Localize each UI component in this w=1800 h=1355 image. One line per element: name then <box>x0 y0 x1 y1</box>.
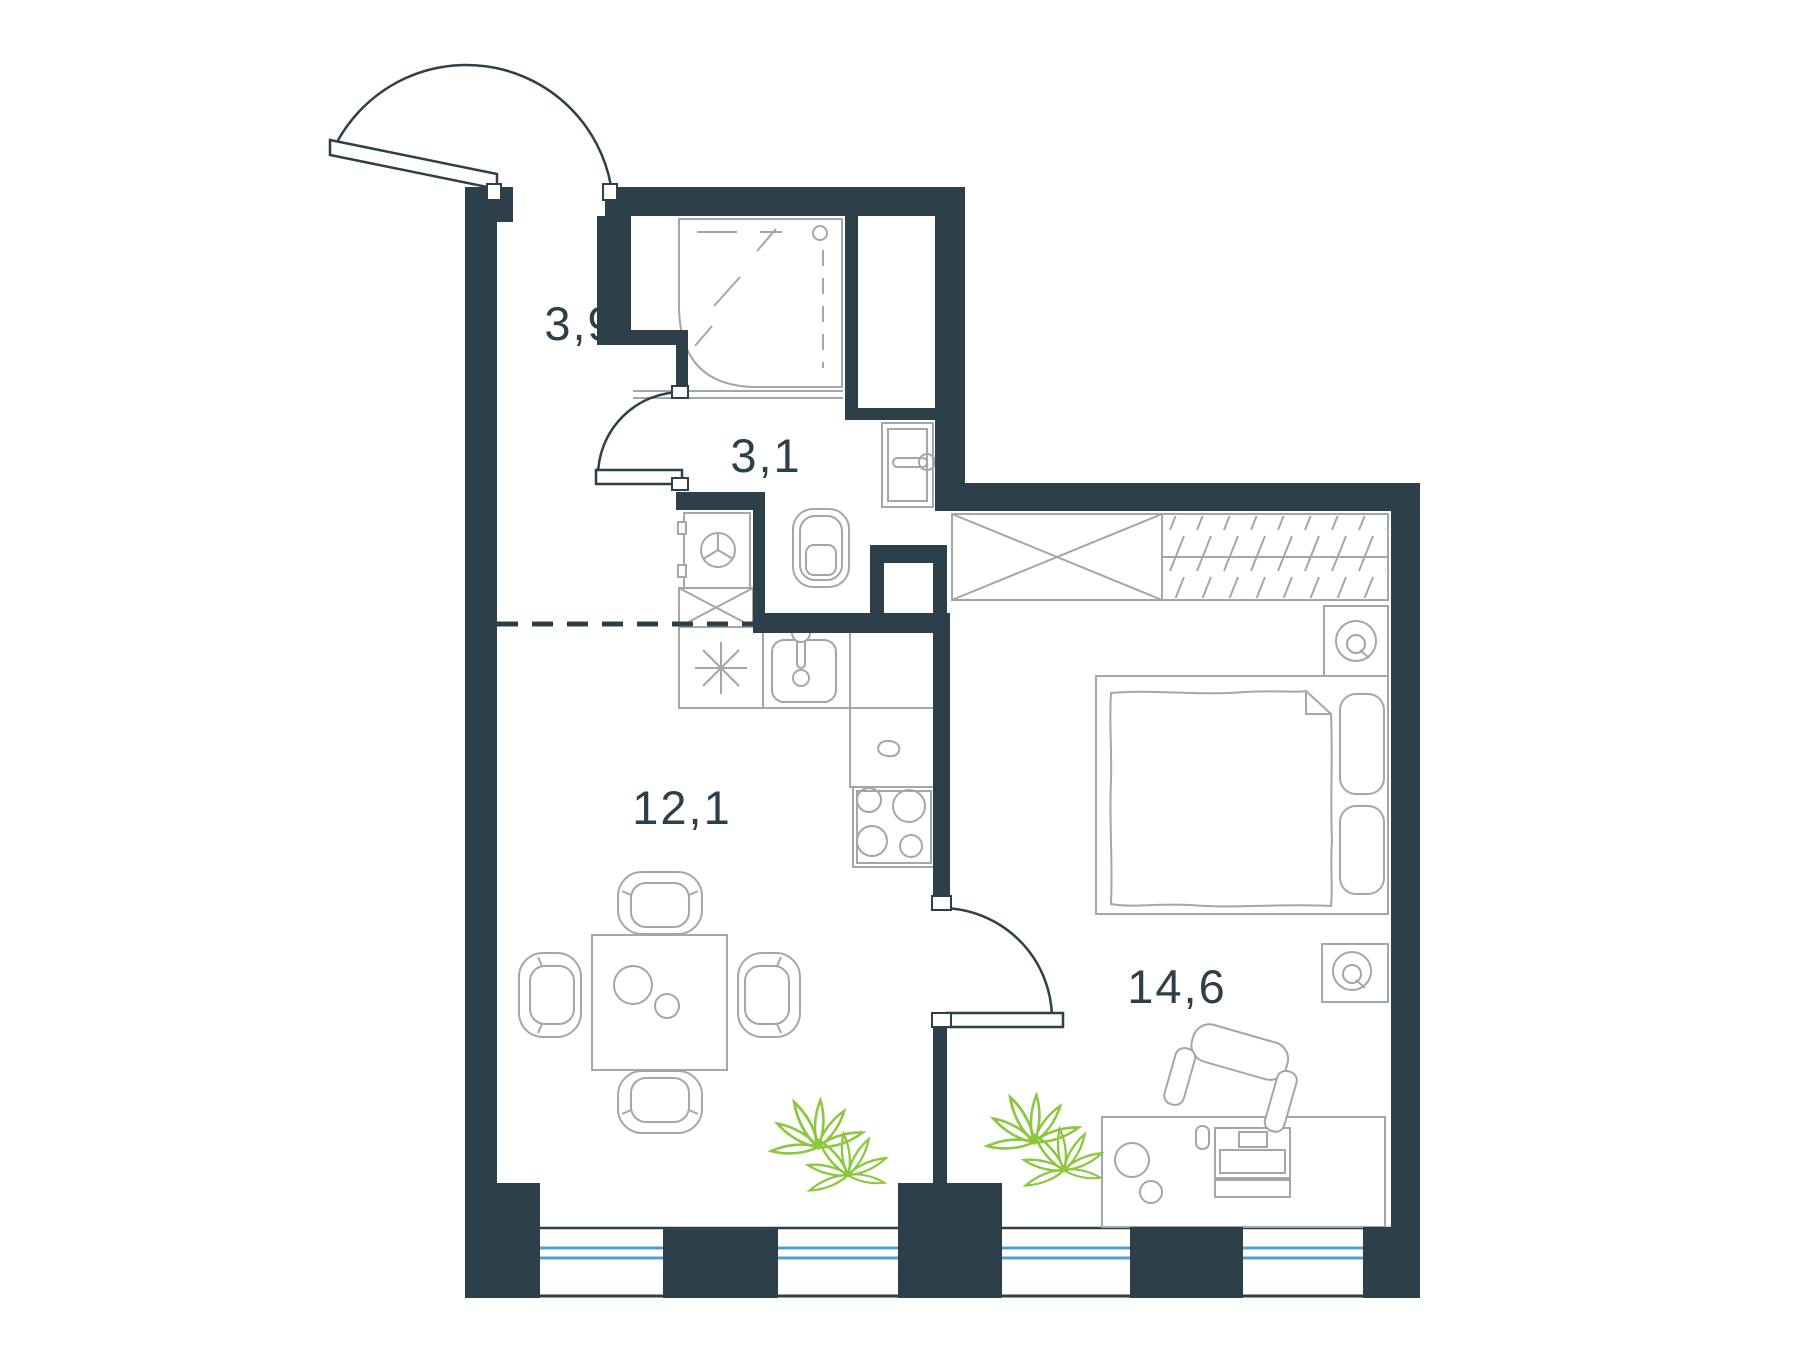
pillow <box>1340 694 1384 794</box>
toilet <box>793 509 849 587</box>
plate-small <box>655 994 679 1018</box>
door-handle <box>893 458 927 467</box>
wall-shaft-right <box>935 187 965 511</box>
chair-back <box>1187 1020 1292 1084</box>
wall-shaft-bottom <box>845 408 935 420</box>
pillar-bottom-right <box>1363 1227 1420 1298</box>
pillow <box>1340 806 1384 894</box>
wall-left <box>465 187 497 1183</box>
wardrobe-hatch <box>1164 558 1386 598</box>
wall-divider-lower <box>933 1027 947 1183</box>
door-jamb <box>603 184 617 200</box>
plate <box>614 966 652 1004</box>
counter-segment <box>850 708 937 787</box>
pillar-bottom-left <box>465 1183 540 1298</box>
blanket <box>1110 691 1332 906</box>
dining-chair <box>519 953 581 1037</box>
dining-chair <box>618 1071 702 1133</box>
nightstand-top <box>1324 606 1388 676</box>
wall-shaft-left <box>845 216 858 420</box>
entrance-door-leaf <box>330 140 497 189</box>
plant-icon <box>771 1100 887 1194</box>
wall-niche-top <box>676 492 765 510</box>
door-jamb <box>672 386 688 398</box>
wardrobe-hatch <box>1164 516 1386 556</box>
bathroom-door <box>596 386 688 490</box>
plant-icon <box>987 1095 1103 1189</box>
dining-group <box>519 872 800 1133</box>
entrance-door <box>330 65 617 200</box>
bathroom-door-leaf <box>596 470 682 484</box>
shower-glass-slash <box>695 326 712 346</box>
room-label-kitchen-living: 12,1 <box>632 781 731 834</box>
door-jamb <box>487 184 501 200</box>
pillar-divider <box>898 1183 1002 1298</box>
room-label-bedroom: 14,6 <box>1127 960 1226 1013</box>
duct-niche-opening <box>884 563 933 613</box>
wall-top <box>605 187 965 216</box>
washing-machine <box>678 513 750 589</box>
washing-machine-notch <box>678 565 686 577</box>
nightstand-bottom <box>1322 944 1388 1002</box>
dining-chair <box>738 953 800 1037</box>
shower-door-pivot <box>813 226 827 240</box>
shower-cabin <box>633 219 843 398</box>
desk-area <box>1102 1017 1385 1227</box>
chair-armrest <box>1162 1046 1197 1107</box>
floor-plan-drawing: 3,9 3,1 12,1 14,6 <box>0 0 1800 1350</box>
crossed-cabinet <box>679 588 753 627</box>
bedroom-door-arc <box>941 908 1052 1019</box>
bedroom-door-leaf <box>947 1013 1063 1027</box>
floor-plan-page: 3,9 3,1 12,1 14,6 <box>0 0 1800 1350</box>
nightstand <box>1324 606 1388 676</box>
dining-chair <box>618 872 702 934</box>
double-bed <box>1096 676 1388 914</box>
room-label-bathroom: 3,1 <box>730 429 801 482</box>
wall-niche-right <box>753 510 765 615</box>
wall-bedroom-top <box>965 483 1420 511</box>
door-jamb <box>932 896 951 910</box>
pillar-window-left <box>663 1227 778 1298</box>
shower-glass-slash <box>714 277 740 306</box>
corner-counter <box>850 627 937 708</box>
bathroom-door-arc <box>598 392 682 476</box>
room-label-hallway: 3,9 <box>544 297 615 350</box>
wall-divider-upper <box>933 633 950 896</box>
wardrobe <box>952 514 1388 600</box>
door-panel-decor <box>882 423 935 507</box>
shower-tray <box>679 219 842 387</box>
wall-right <box>1391 511 1420 1297</box>
door-jamb <box>672 478 688 490</box>
door-jamb <box>932 1013 951 1027</box>
pillar-window-right <box>1130 1227 1243 1298</box>
washing-machine-notch <box>678 522 686 534</box>
bedroom-door <box>932 896 1063 1027</box>
